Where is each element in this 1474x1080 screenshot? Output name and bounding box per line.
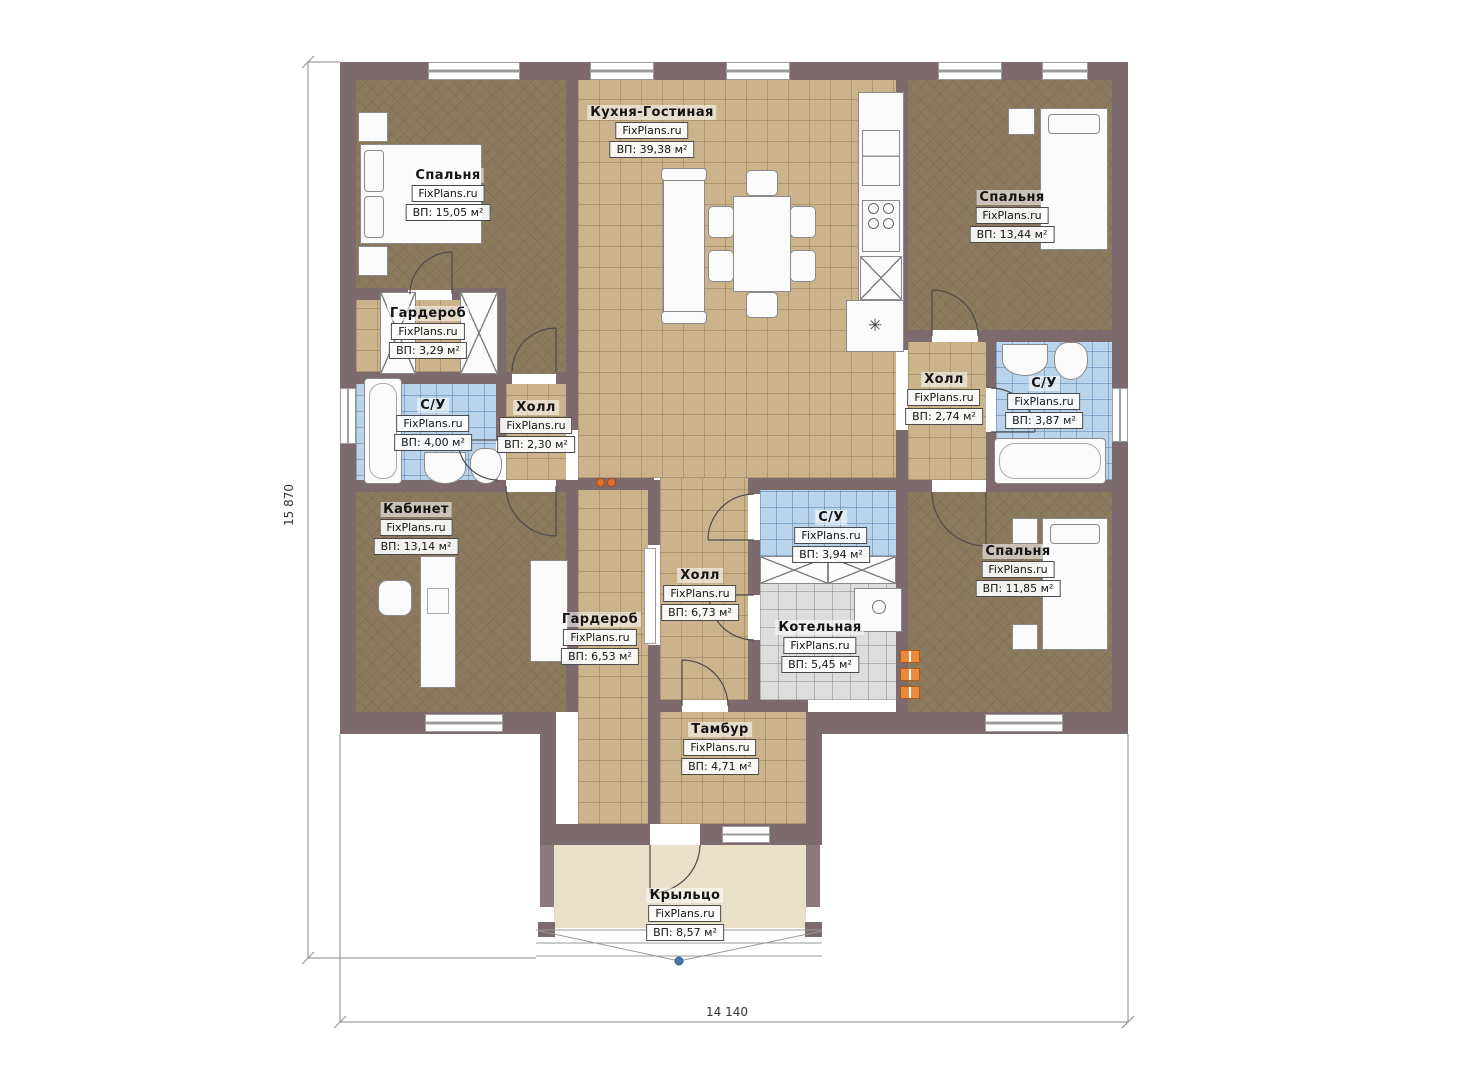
nightstand	[1012, 518, 1038, 544]
room-area: ВП: 3,94 м²	[792, 546, 870, 563]
room-label-office: Кабинет FixPlans.ru ВП: 13,14 м²	[374, 502, 459, 555]
dimension-width-label: 14 140	[706, 1005, 748, 1019]
desk-equipment	[427, 588, 449, 614]
room-name: Холл	[677, 568, 723, 583]
heating-point-icon	[607, 478, 616, 487]
brand-label: FixPlans.ru	[499, 417, 572, 434]
room-label-bedroom-bottom-right: Спальня FixPlans.ru ВП: 11,85 м²	[976, 544, 1061, 597]
sofa-armrest	[661, 311, 707, 324]
wall	[648, 712, 660, 824]
window	[428, 62, 520, 80]
room-label-hall-right: Холл FixPlans.ru ВП: 2,74 м²	[905, 372, 983, 425]
toilet	[470, 448, 502, 484]
wall	[556, 480, 578, 492]
room-floor-bedroom-alcove	[506, 290, 566, 374]
chair	[790, 250, 816, 282]
radiator-icon	[900, 686, 920, 699]
room-area: ВП: 13,44 м²	[970, 226, 1055, 243]
room-name: Спальня	[976, 190, 1047, 205]
porch-wall	[540, 845, 554, 907]
kitchen-sink: ✳	[846, 300, 904, 352]
wall	[748, 478, 896, 490]
pillow	[364, 150, 384, 192]
window	[726, 62, 790, 80]
wall	[806, 712, 1128, 734]
wall	[654, 700, 682, 712]
brand-label: FixPlans.ru	[783, 637, 856, 654]
dining-table	[733, 196, 791, 292]
room-label-bathroom-center: С/У FixPlans.ru ВП: 3,94 м²	[792, 510, 870, 563]
room-name: Холл	[513, 400, 559, 415]
brand-label: FixPlans.ru	[391, 323, 464, 340]
room-area: ВП: 13,14 м²	[374, 538, 459, 555]
nightstand	[358, 112, 388, 142]
stove	[862, 200, 900, 252]
burner-icon	[868, 203, 879, 214]
room-area: ВП: 4,71 м²	[681, 758, 759, 775]
room-name: Гардероб	[559, 612, 641, 627]
pillow	[1048, 114, 1100, 134]
brand-label: FixPlans.ru	[396, 415, 469, 432]
room-label-vestibule: Тамбур FixPlans.ru ВП: 4,71 м²	[681, 722, 759, 775]
room-label-wardrobe-top: Гардероб FixPlans.ru ВП: 3,29 м²	[387, 306, 469, 359]
window	[1112, 388, 1128, 442]
wall	[556, 372, 578, 384]
room-label-hall-left: Холл FixPlans.ru ВП: 2,30 м²	[497, 400, 575, 453]
wall	[896, 430, 908, 480]
brand-label: FixPlans.ru	[907, 389, 980, 406]
bathtub-inner	[999, 443, 1101, 479]
wall	[908, 480, 932, 492]
burner-icon	[883, 218, 894, 229]
room-name: Холл	[921, 372, 967, 387]
entrance-doorway	[650, 824, 700, 845]
toilet	[1054, 342, 1088, 380]
wall	[748, 478, 760, 494]
wall	[498, 372, 512, 384]
room-name: Кухня-Гостиная	[587, 105, 716, 120]
room-area: ВП: 2,30 м²	[497, 436, 575, 453]
bathtub-inner	[369, 383, 397, 479]
wall	[648, 480, 660, 545]
brand-label: FixPlans.ru	[1007, 393, 1080, 410]
room-name: С/У	[417, 398, 449, 413]
brand-label: FixPlans.ru	[563, 629, 636, 646]
wall	[1112, 62, 1128, 712]
sofa	[663, 172, 705, 320]
heating-point-icon	[596, 478, 605, 487]
wall	[340, 62, 356, 712]
wall	[806, 712, 822, 824]
nightstand	[358, 246, 388, 276]
burner-icon	[883, 203, 894, 214]
pillow	[1050, 524, 1100, 544]
window	[590, 62, 654, 80]
room-area: ВП: 15,05 м²	[406, 204, 491, 221]
kitchen-cabinet	[860, 256, 902, 300]
wash-basin	[424, 452, 466, 484]
brand-label: FixPlans.ru	[794, 527, 867, 544]
burner-icon	[868, 218, 879, 229]
wash-basin	[1002, 344, 1048, 376]
office-chair	[378, 580, 412, 616]
room-label-bathroom-right: С/У FixPlans.ru ВП: 3,87 м²	[1005, 376, 1083, 429]
room-name: Кабинет	[380, 502, 452, 517]
chair	[708, 206, 734, 238]
room-name: Спальня	[982, 544, 1053, 559]
room-name: С/У	[1028, 376, 1060, 391]
room-name: Тамбур	[688, 722, 752, 737]
porch-post	[805, 922, 822, 937]
room-area: ВП: 11,85 м²	[976, 580, 1061, 597]
room-name: Гардероб	[387, 306, 469, 321]
wall	[908, 330, 932, 342]
chair	[746, 292, 778, 318]
room-label-hall-center: Холл FixPlans.ru ВП: 6,73 м²	[661, 568, 739, 621]
dimension-node	[675, 957, 683, 965]
room-name: С/У	[815, 510, 847, 525]
room-name: Котельная	[775, 620, 864, 635]
brand-label: FixPlans.ru	[663, 585, 736, 602]
wall	[986, 342, 996, 388]
wall	[978, 330, 1112, 342]
desk	[420, 556, 456, 688]
brand-label: FixPlans.ru	[411, 185, 484, 202]
wall	[748, 585, 760, 595]
radiator-icon	[900, 668, 920, 681]
boiler-dial-icon	[872, 600, 886, 614]
chair	[746, 170, 778, 196]
pillow	[364, 196, 384, 238]
room-label-wardrobe-bottom: Гардероб FixPlans.ru ВП: 6,53 м²	[559, 612, 641, 665]
brand-label: FixPlans.ru	[683, 739, 756, 756]
room-label-porch: Крыльцо FixPlans.ru ВП: 8,57 м²	[646, 888, 724, 941]
room-area: ВП: 5,45 м²	[781, 656, 859, 673]
room-area: ВП: 6,73 м²	[661, 604, 739, 621]
brand-label: FixPlans.ru	[648, 905, 721, 922]
room-area: ВП: 4,00 м²	[394, 434, 472, 451]
wardrobe-door-leaf	[644, 548, 656, 644]
brand-label: FixPlans.ru	[981, 561, 1054, 578]
room-name: Крыльцо	[647, 888, 724, 903]
brand-label: FixPlans.ru	[975, 207, 1048, 224]
chair	[708, 250, 734, 282]
window	[985, 714, 1063, 732]
wall	[728, 700, 808, 712]
brand-label: FixPlans.ru	[379, 519, 452, 536]
window	[340, 388, 356, 444]
porch-post	[538, 922, 555, 937]
room-label-bedroom-top-left: Спальня FixPlans.ru ВП: 15,05 м²	[406, 168, 491, 221]
room-label-bathroom-left: С/У FixPlans.ru ВП: 4,00 м²	[394, 398, 472, 451]
porch-wall	[806, 845, 820, 907]
room-label-bedroom-top-right: Спальня FixPlans.ru ВП: 13,44 м²	[970, 190, 1055, 243]
fridge	[862, 130, 900, 186]
chair	[790, 206, 816, 238]
brand-label: FixPlans.ru	[615, 122, 688, 139]
wall	[748, 540, 760, 585]
floor-plan: ✳	[0, 0, 1474, 1080]
nightstand	[1012, 624, 1038, 650]
room-label-kitchen-living: Кухня-Гостиная FixPlans.ru ВП: 39,38 м²	[587, 105, 716, 158]
wall	[578, 478, 654, 490]
room-area: ВП: 3,29 м²	[389, 342, 467, 359]
sofa-armrest	[661, 168, 707, 181]
wall	[540, 712, 556, 824]
dimension-height-label: 15 870	[282, 484, 296, 526]
room-area: ВП: 39,38 м²	[610, 141, 695, 158]
window	[1042, 62, 1088, 80]
nightstand	[1008, 108, 1035, 135]
room-area: ВП: 6,53 м²	[561, 648, 639, 665]
room-label-boiler-room: Котельная FixPlans.ru ВП: 5,45 м²	[775, 620, 864, 673]
window	[938, 62, 1002, 80]
room-area: ВП: 2,74 м²	[905, 408, 983, 425]
window	[425, 714, 503, 732]
window	[722, 826, 770, 843]
room-area: ВП: 8,57 м²	[646, 924, 724, 941]
room-area: ВП: 3,87 м²	[1005, 412, 1083, 429]
room-name: Спальня	[412, 168, 483, 183]
radiator-icon	[900, 650, 920, 663]
